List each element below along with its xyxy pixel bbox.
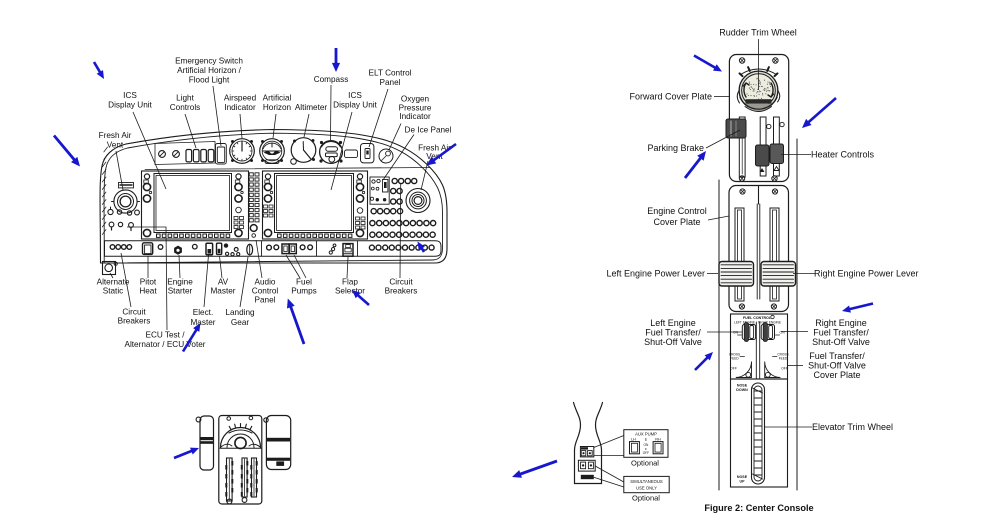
svg-text:Left Engine Power Lever: Left Engine Power Lever xyxy=(606,269,705,279)
svg-text:OxygenPressureIndicator: OxygenPressureIndicator xyxy=(399,95,432,122)
svg-text:ArtificialHorizon: ArtificialHorizon xyxy=(263,94,292,113)
svg-text:DOWN: DOWN xyxy=(736,388,748,392)
svg-text:UP: UP xyxy=(740,480,746,484)
svg-text:Forward Cover Plate: Forward Cover Plate xyxy=(629,92,712,102)
svg-text:Optional: Optional xyxy=(631,459,659,468)
svg-text:EngineStarter: EngineStarter xyxy=(167,278,193,296)
svg-text:CircuitBreakers: CircuitBreakers xyxy=(385,278,418,296)
svg-text:NOSE: NOSE xyxy=(737,384,748,388)
svg-text:CircuitBreakers: CircuitBreakers xyxy=(118,308,151,326)
svg-text:Left EngineFuel Transfer/Shut-: Left EngineFuel Transfer/Shut-Off Valve xyxy=(644,318,702,347)
svg-text:FEED: FEED xyxy=(779,357,788,361)
svg-text:Figure 2: Center Console: Figure 2: Center Console xyxy=(704,503,813,513)
svg-text:Rudder Trim Wheel: Rudder Trim Wheel xyxy=(719,28,797,38)
svg-text:NOSE: NOSE xyxy=(737,475,748,479)
svg-text:Altimeter: Altimeter xyxy=(295,103,328,112)
svg-text:PitotHeat: PitotHeat xyxy=(139,278,157,296)
svg-text:OFF: OFF xyxy=(781,367,788,371)
svg-text:FEED: FEED xyxy=(730,357,739,361)
svg-text:RIGHT ENGINE: RIGHT ENGINE xyxy=(758,321,781,325)
svg-text:Heater Controls: Heater Controls xyxy=(811,150,875,160)
svg-text:Engine ControlCover Plate: Engine ControlCover Plate xyxy=(647,206,707,227)
svg-text:Elevator Trim Wheel: Elevator Trim Wheel xyxy=(812,422,893,432)
svg-text:Fuel Transfer/Shut-Off ValveCo: Fuel Transfer/Shut-Off ValveCover Plate xyxy=(808,351,866,380)
svg-text:Elect.Master: Elect.Master xyxy=(190,308,215,327)
svg-text:ON: ON xyxy=(644,443,649,447)
svg-text:RH: RH xyxy=(655,437,661,441)
svg-text:ON: ON xyxy=(733,331,739,335)
svg-text:Optional: Optional xyxy=(632,494,660,503)
svg-text:Right EngineFuel Transfer/Shut: Right EngineFuel Transfer/Shut-Off Valve xyxy=(812,318,870,347)
svg-text:OFF: OFF xyxy=(643,451,649,455)
svg-text:Right Engine Power Lever: Right Engine Power Lever xyxy=(814,269,919,279)
svg-text:LH: LH xyxy=(631,437,636,441)
svg-text:FUEL CONTROL: FUEL CONTROL xyxy=(743,316,772,320)
svg-text:AirspeedIndicator: AirspeedIndicator xyxy=(224,94,257,113)
svg-text:Parking Brake: Parking Brake xyxy=(647,143,704,153)
svg-text:SIMULTANEOUS: SIMULTANEOUS xyxy=(630,479,663,484)
svg-text:OFF: OFF xyxy=(730,367,737,371)
svg-text:Compass: Compass xyxy=(314,75,349,84)
svg-text:AudioControlPanel: AudioControlPanel xyxy=(252,278,279,305)
svg-text:De Ice Panel: De Ice Panel xyxy=(405,126,452,135)
svg-text:USE ONLY: USE ONLY xyxy=(636,486,657,491)
svg-text:AUX PUMP: AUX PUMP xyxy=(635,431,657,436)
